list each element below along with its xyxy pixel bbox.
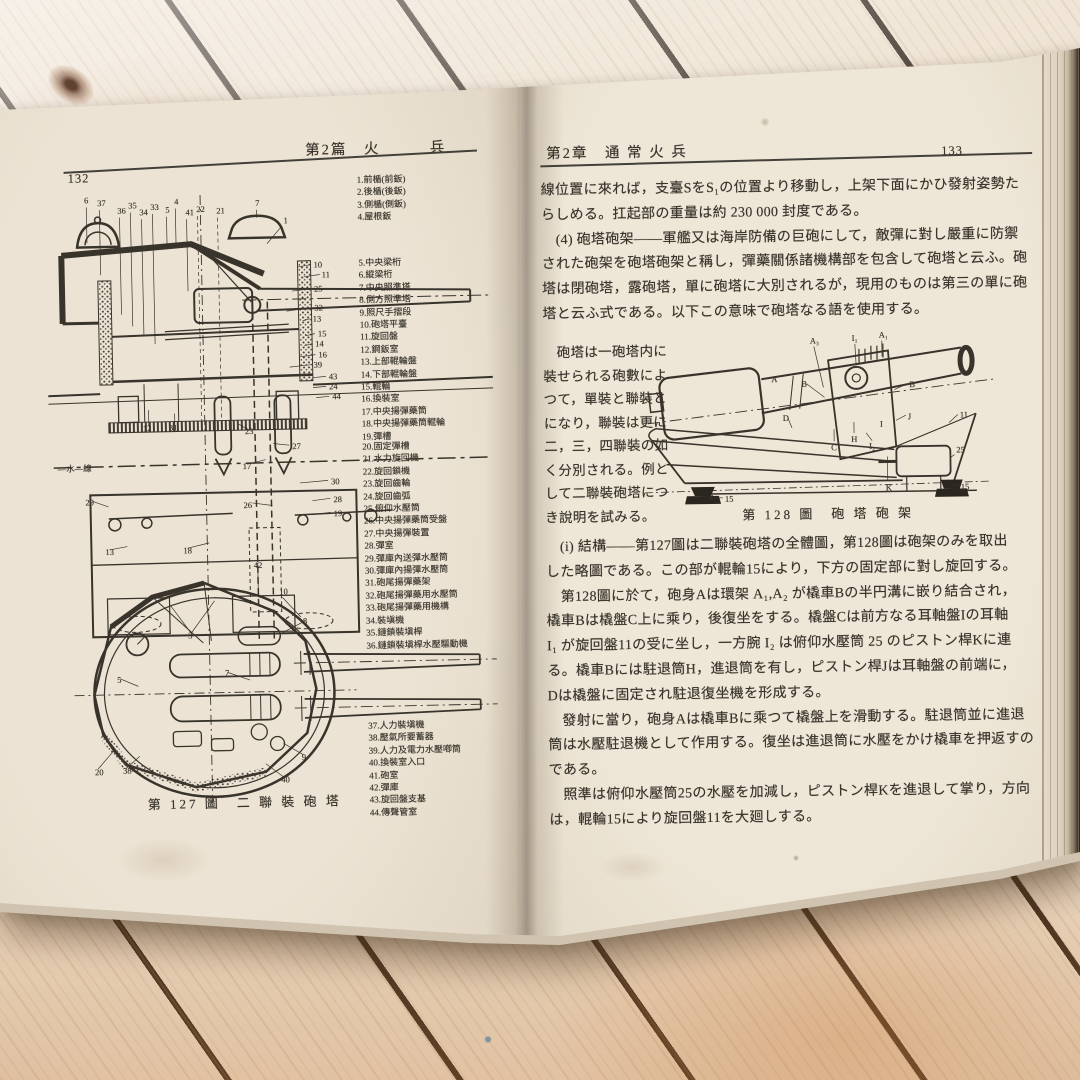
figure-label: 15 bbox=[961, 481, 970, 491]
figure-label: C bbox=[831, 442, 837, 452]
figure-label: B bbox=[801, 379, 807, 389]
book-shadow-wrap: 第2篇 火 兵 132 bbox=[0, 0, 1080, 1080]
figure-label: A₃ bbox=[810, 335, 819, 345]
figure-label: I₂ bbox=[869, 441, 875, 451]
figure-128-labels: A₃I₁A₁ABBDCHII₂JK11251515 bbox=[723, 328, 970, 503]
figure-label: I₁ bbox=[852, 333, 858, 343]
right-running-head: 第2章 通 常 火 兵 bbox=[546, 140, 688, 163]
body-paragraphs-top: 線位置に來れば，支臺SをS₁の位置より移動し，上架下面にかひ發射姿勢たらしめる。… bbox=[540, 173, 1027, 329]
figure-label: D bbox=[783, 413, 789, 423]
figure-128-caption: 第 128 圖 砲 塔 砲 架 bbox=[728, 502, 928, 524]
figure-label: 11 bbox=[960, 409, 968, 419]
photo-of-open-book: 第2篇 火 兵 132 bbox=[0, 0, 1080, 1080]
figure-label: 25 bbox=[956, 444, 965, 454]
body-paragraphs-bottom: (i) 結構――第127圖は二聯裝砲塔の全體圖，第128圖は砲架のみを取出した略… bbox=[545, 530, 1034, 834]
right-page-number: 133 bbox=[941, 143, 963, 158]
figure-label: K bbox=[886, 482, 893, 492]
figure-label: 15 bbox=[725, 494, 734, 504]
figure-label: A₁ bbox=[879, 329, 888, 339]
figure-label: J bbox=[908, 411, 912, 421]
figure-128-gun-mount-diagram: A₃I₁A₁ABBDCHII₂JK11251515 bbox=[643, 327, 1001, 517]
figure-label: B bbox=[909, 379, 915, 389]
figure-label: I bbox=[880, 419, 883, 429]
figure-label: H bbox=[851, 434, 857, 444]
figure-label: A bbox=[771, 374, 778, 384]
